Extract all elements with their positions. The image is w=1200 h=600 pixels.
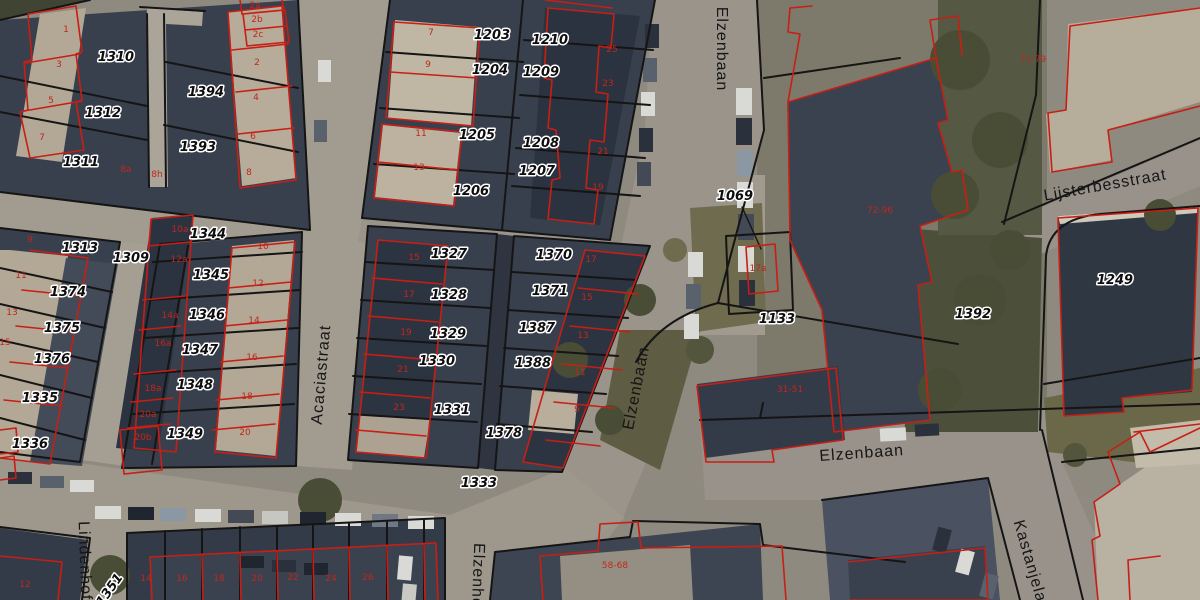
house-number-label: 16a xyxy=(155,339,172,349)
house-number-label: 7 xyxy=(428,28,434,38)
house-number-label: 3 xyxy=(56,60,62,70)
house-number-label: 8h xyxy=(151,170,162,180)
parcel-number-label: 1330 xyxy=(419,354,455,369)
house-number-label: 8 xyxy=(246,168,252,178)
house-number-label: 72-96 xyxy=(867,206,893,216)
parcel-number-label: 1392 xyxy=(955,307,991,322)
parcel-number-label: 1249 xyxy=(1097,273,1133,288)
house-number-label: 24 xyxy=(325,574,337,584)
house-number-label: 15 xyxy=(408,253,419,263)
parcel-number-label: 1206 xyxy=(453,184,489,199)
house-number-label: 15 xyxy=(581,293,592,303)
house-number-label: 18a xyxy=(145,384,162,394)
parcel-number-label: 1133 xyxy=(759,312,795,327)
parcel-number-label: 1333 xyxy=(461,476,497,491)
house-number-label: 5 xyxy=(48,96,54,106)
parcel-number-label: 1331 xyxy=(434,403,470,418)
parcel-number-label: 1394 xyxy=(188,85,224,100)
parcel-number-label: 1388 xyxy=(515,356,551,371)
house-number-label: 21 xyxy=(597,147,608,157)
house-number-label: 20a xyxy=(140,410,157,420)
parcel-number-label: 1209 xyxy=(523,65,559,80)
parcel-number-label: 1347 xyxy=(182,343,219,358)
house-number-label: 14 xyxy=(248,316,260,326)
house-number-label: 11 xyxy=(15,271,26,281)
parcel-number-label: 1376 xyxy=(34,352,70,367)
parcel-number-label: 1371 xyxy=(532,284,568,299)
house-number-label: 15 xyxy=(0,338,11,348)
house-number-label: 9 xyxy=(574,405,580,415)
house-number-label: 18 xyxy=(213,574,225,584)
parcel-number-label: 1374 xyxy=(50,285,86,300)
parcel-number-label: 1311 xyxy=(63,155,99,170)
house-number-label: 25 xyxy=(606,45,617,55)
parcel-number-label: 1210 xyxy=(532,33,568,48)
house-number-label: 26 xyxy=(362,573,374,583)
house-number-label: 58-68 xyxy=(602,561,628,571)
parcel-number-label: 1312 xyxy=(85,106,121,121)
house-number-label: 13 xyxy=(6,308,17,318)
parcel-number-label: 1370 xyxy=(536,248,572,263)
house-number-label: 13 xyxy=(577,331,588,341)
house-number-label: 19 xyxy=(400,328,412,338)
house-number-label: 14a xyxy=(162,311,179,321)
parcel-number-label: 1344 xyxy=(190,227,226,242)
parcel-number-label: 1329 xyxy=(430,327,466,342)
house-number-label: 7 xyxy=(39,133,45,143)
parcel-number-label: 1327 xyxy=(431,247,468,262)
parcel-number-label: 1335 xyxy=(22,391,58,406)
house-number-label: 21 xyxy=(397,365,408,375)
house-number-label: 17a xyxy=(750,264,767,274)
house-number-label: 4 xyxy=(253,93,259,103)
house-number-label: 12 xyxy=(19,580,30,590)
house-number-label: 23 xyxy=(602,79,613,89)
street-name-label: Elzenbaan xyxy=(713,7,730,92)
house-number-label: 12 xyxy=(252,279,263,289)
parcel-number-label: 1387 xyxy=(519,321,556,336)
house-number-label: 17 xyxy=(403,290,414,300)
house-number-label: 6 xyxy=(250,132,256,142)
parcel-number-label: 1203 xyxy=(474,28,510,43)
house-number-label: 11 xyxy=(415,129,426,139)
parcel-number-label: 1069 xyxy=(717,189,753,204)
parcel-number-label: 1348 xyxy=(177,378,213,393)
house-number-label: 20 xyxy=(251,574,263,584)
parcel-number-label: 1336 xyxy=(12,437,48,452)
house-number-label: 8a xyxy=(120,165,131,175)
parcel-number-label: 1393 xyxy=(180,140,216,155)
house-number-label: 23 xyxy=(393,403,404,413)
parcel-number-label: 1328 xyxy=(431,288,467,303)
house-number-label: 10 xyxy=(257,242,269,252)
parcel-number-label: 1345 xyxy=(193,268,229,283)
house-number-label: 1 xyxy=(63,25,69,35)
parcel-number-label: 1378 xyxy=(486,426,522,441)
house-number-label: 2a xyxy=(249,1,260,11)
house-number-label: 10a xyxy=(172,225,189,235)
parcel-number-label: 1207 xyxy=(519,164,556,179)
house-number-label: 31-51 xyxy=(777,385,803,395)
cadastral-map-viewport[interactable]: ElzenbaanAcaciastraatElzenbaanElzenbaanL… xyxy=(0,0,1200,600)
house-number-label: 22 xyxy=(287,573,298,583)
house-number-label: 20 xyxy=(239,428,251,438)
parcel-number-label: 1309 xyxy=(113,251,149,266)
house-number-label: 2 xyxy=(254,58,260,68)
house-number-label: 16 xyxy=(176,574,188,584)
house-number-label: 71-79 xyxy=(1020,55,1046,65)
parcel-number-label: 1313 xyxy=(62,241,98,256)
house-number-label: 2c xyxy=(253,30,264,40)
house-number-label: 13 xyxy=(413,163,424,173)
parcel-number-label: 1205 xyxy=(459,128,495,143)
parcel-number-label: 1310 xyxy=(98,50,134,65)
street-name-label: Elzenhof xyxy=(468,543,487,600)
parcel-number-label: 1346 xyxy=(189,308,225,323)
house-number-label: 17 xyxy=(585,255,596,265)
house-number-label: 12a xyxy=(171,255,188,265)
parcel-number-label: 1208 xyxy=(523,136,559,151)
map-canvas[interactable]: ElzenbaanAcaciastraatElzenbaanElzenbaanL… xyxy=(0,0,1200,600)
parcel-number-label: 1204 xyxy=(472,63,508,78)
house-number-label: 2b xyxy=(251,15,263,25)
house-number-label: 9 xyxy=(425,60,431,70)
street-name-label: Lindenhof xyxy=(75,521,95,600)
house-number-label: 9 xyxy=(27,235,33,245)
parcel-number-label: 1375 xyxy=(44,321,80,336)
house-number-label: 18 xyxy=(241,392,253,402)
house-number-label: 16 xyxy=(246,353,258,363)
house-number-label: 11 xyxy=(574,368,585,378)
house-number-label: 14 xyxy=(140,574,152,584)
house-number-label: 19 xyxy=(592,183,604,193)
parcel-number-label: 1349 xyxy=(167,427,203,442)
house-number-label: 20b xyxy=(134,433,151,443)
